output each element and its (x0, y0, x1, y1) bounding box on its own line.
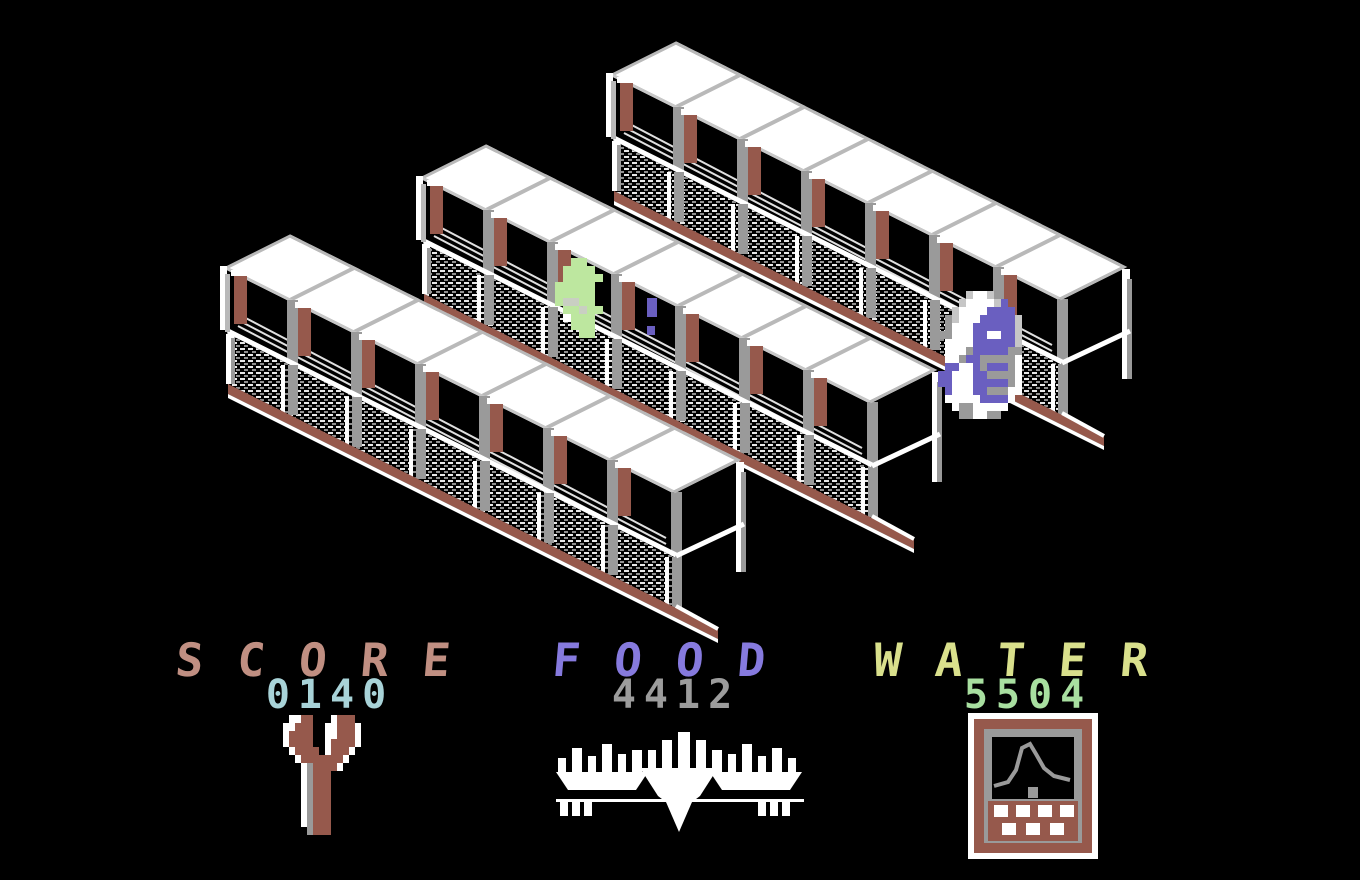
wrench-icon (283, 715, 361, 835)
score-value: 0140 (266, 675, 394, 715)
water-meter-icon (968, 713, 1098, 859)
water-value: 5504 (964, 675, 1092, 715)
game-screen: SCORE 0140 FOOD 4412 WATER 5504 (0, 0, 1360, 880)
game-scene (0, 0, 1360, 880)
hud-icons (283, 713, 1098, 859)
food-value: 4412 (612, 675, 740, 715)
crop-plant-icon (556, 732, 804, 832)
